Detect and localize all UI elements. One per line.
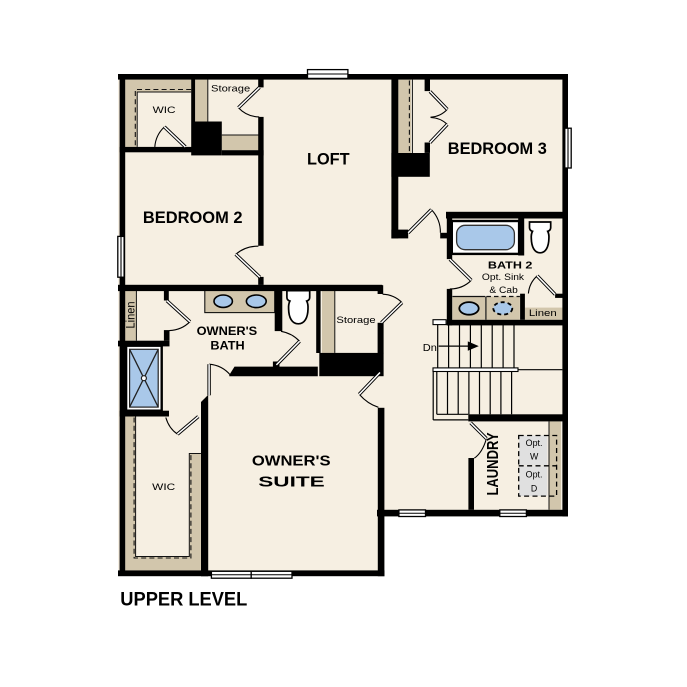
svg-text:Storage: Storage: [336, 315, 375, 326]
svg-text:& Cab: & Cab: [489, 285, 517, 295]
svg-text:BATH 2: BATH 2: [488, 259, 533, 271]
svg-text:OWNER'S: OWNER'S: [197, 324, 258, 338]
svg-text:BATH: BATH: [210, 339, 244, 353]
svg-text:Storage: Storage: [211, 83, 250, 94]
svg-text:BEDROOM 2: BEDROOM 2: [143, 209, 243, 227]
svg-text:LOFT: LOFT: [307, 150, 350, 168]
svg-text:Linen: Linen: [125, 302, 137, 329]
svg-text:SUITE: SUITE: [258, 473, 325, 490]
svg-text:BEDROOM 3: BEDROOM 3: [448, 140, 547, 158]
svg-text:UPPER LEVEL: UPPER LEVEL: [120, 589, 247, 611]
svg-text:W: W: [530, 452, 539, 462]
svg-text:Dn: Dn: [423, 342, 437, 354]
svg-text:Opt.: Opt.: [526, 438, 543, 448]
svg-text:Opt. Sink: Opt. Sink: [482, 272, 525, 282]
svg-text:LAUNDRY: LAUNDRY: [485, 432, 502, 495]
svg-text:Opt.: Opt.: [526, 470, 543, 480]
svg-text:D: D: [531, 483, 537, 493]
svg-text:OWNER'S: OWNER'S: [252, 453, 331, 470]
svg-text:WIC: WIC: [153, 105, 176, 116]
svg-text:WIC: WIC: [152, 482, 175, 493]
svg-text:Linen: Linen: [529, 308, 557, 319]
